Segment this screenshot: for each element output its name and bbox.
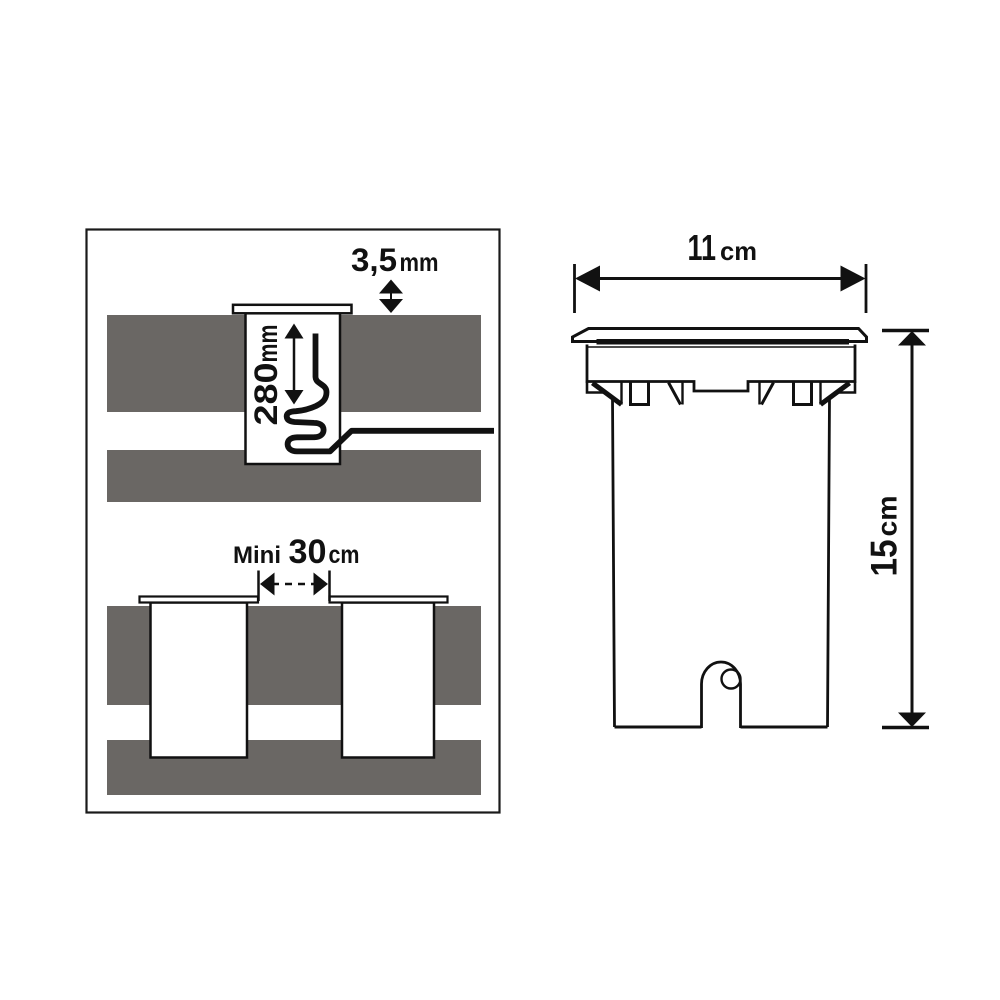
svg-text:280: 280 [248, 363, 284, 426]
svg-text:11: 11 [688, 227, 717, 268]
svg-text:cm: cm [720, 236, 757, 266]
svg-text:Mini: Mini [233, 542, 281, 569]
svg-text:cm: cm [872, 496, 903, 537]
svg-text:15: 15 [864, 540, 905, 577]
svg-text:mm: mm [400, 247, 439, 277]
svg-text:30: 30 [289, 533, 327, 571]
svg-text:mm: mm [252, 325, 283, 363]
svg-text:3,5: 3,5 [351, 242, 397, 278]
svg-text:cm: cm [329, 541, 360, 569]
